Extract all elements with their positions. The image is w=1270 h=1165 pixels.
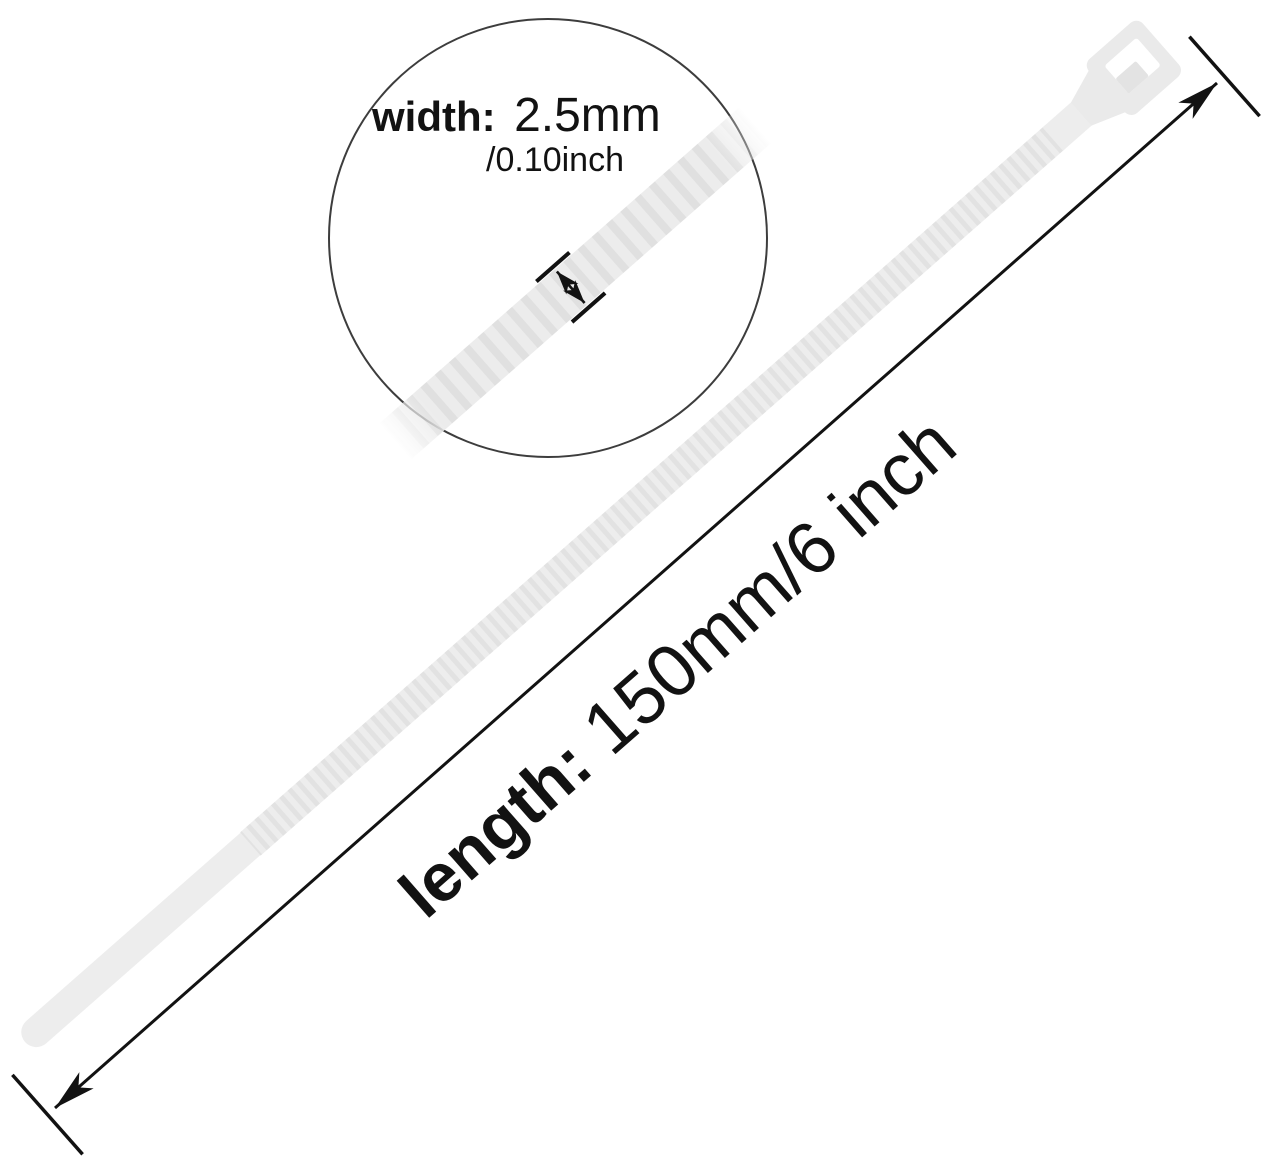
width-label-inch: /0.10inch xyxy=(486,141,624,179)
magnifier-circle xyxy=(329,19,767,457)
product-dimension-diagram: width: 2.5mm /0.10inch length: 150mm/6 i… xyxy=(0,0,1270,1165)
width-label: width: 2.5mm xyxy=(371,89,661,142)
width-label-mm: 2.5mm xyxy=(514,89,661,142)
diagram-canvas: width: 2.5mm /0.10inch length: 150mm/6 i… xyxy=(0,0,1270,1165)
width-label-keyword: width: xyxy=(371,93,496,140)
